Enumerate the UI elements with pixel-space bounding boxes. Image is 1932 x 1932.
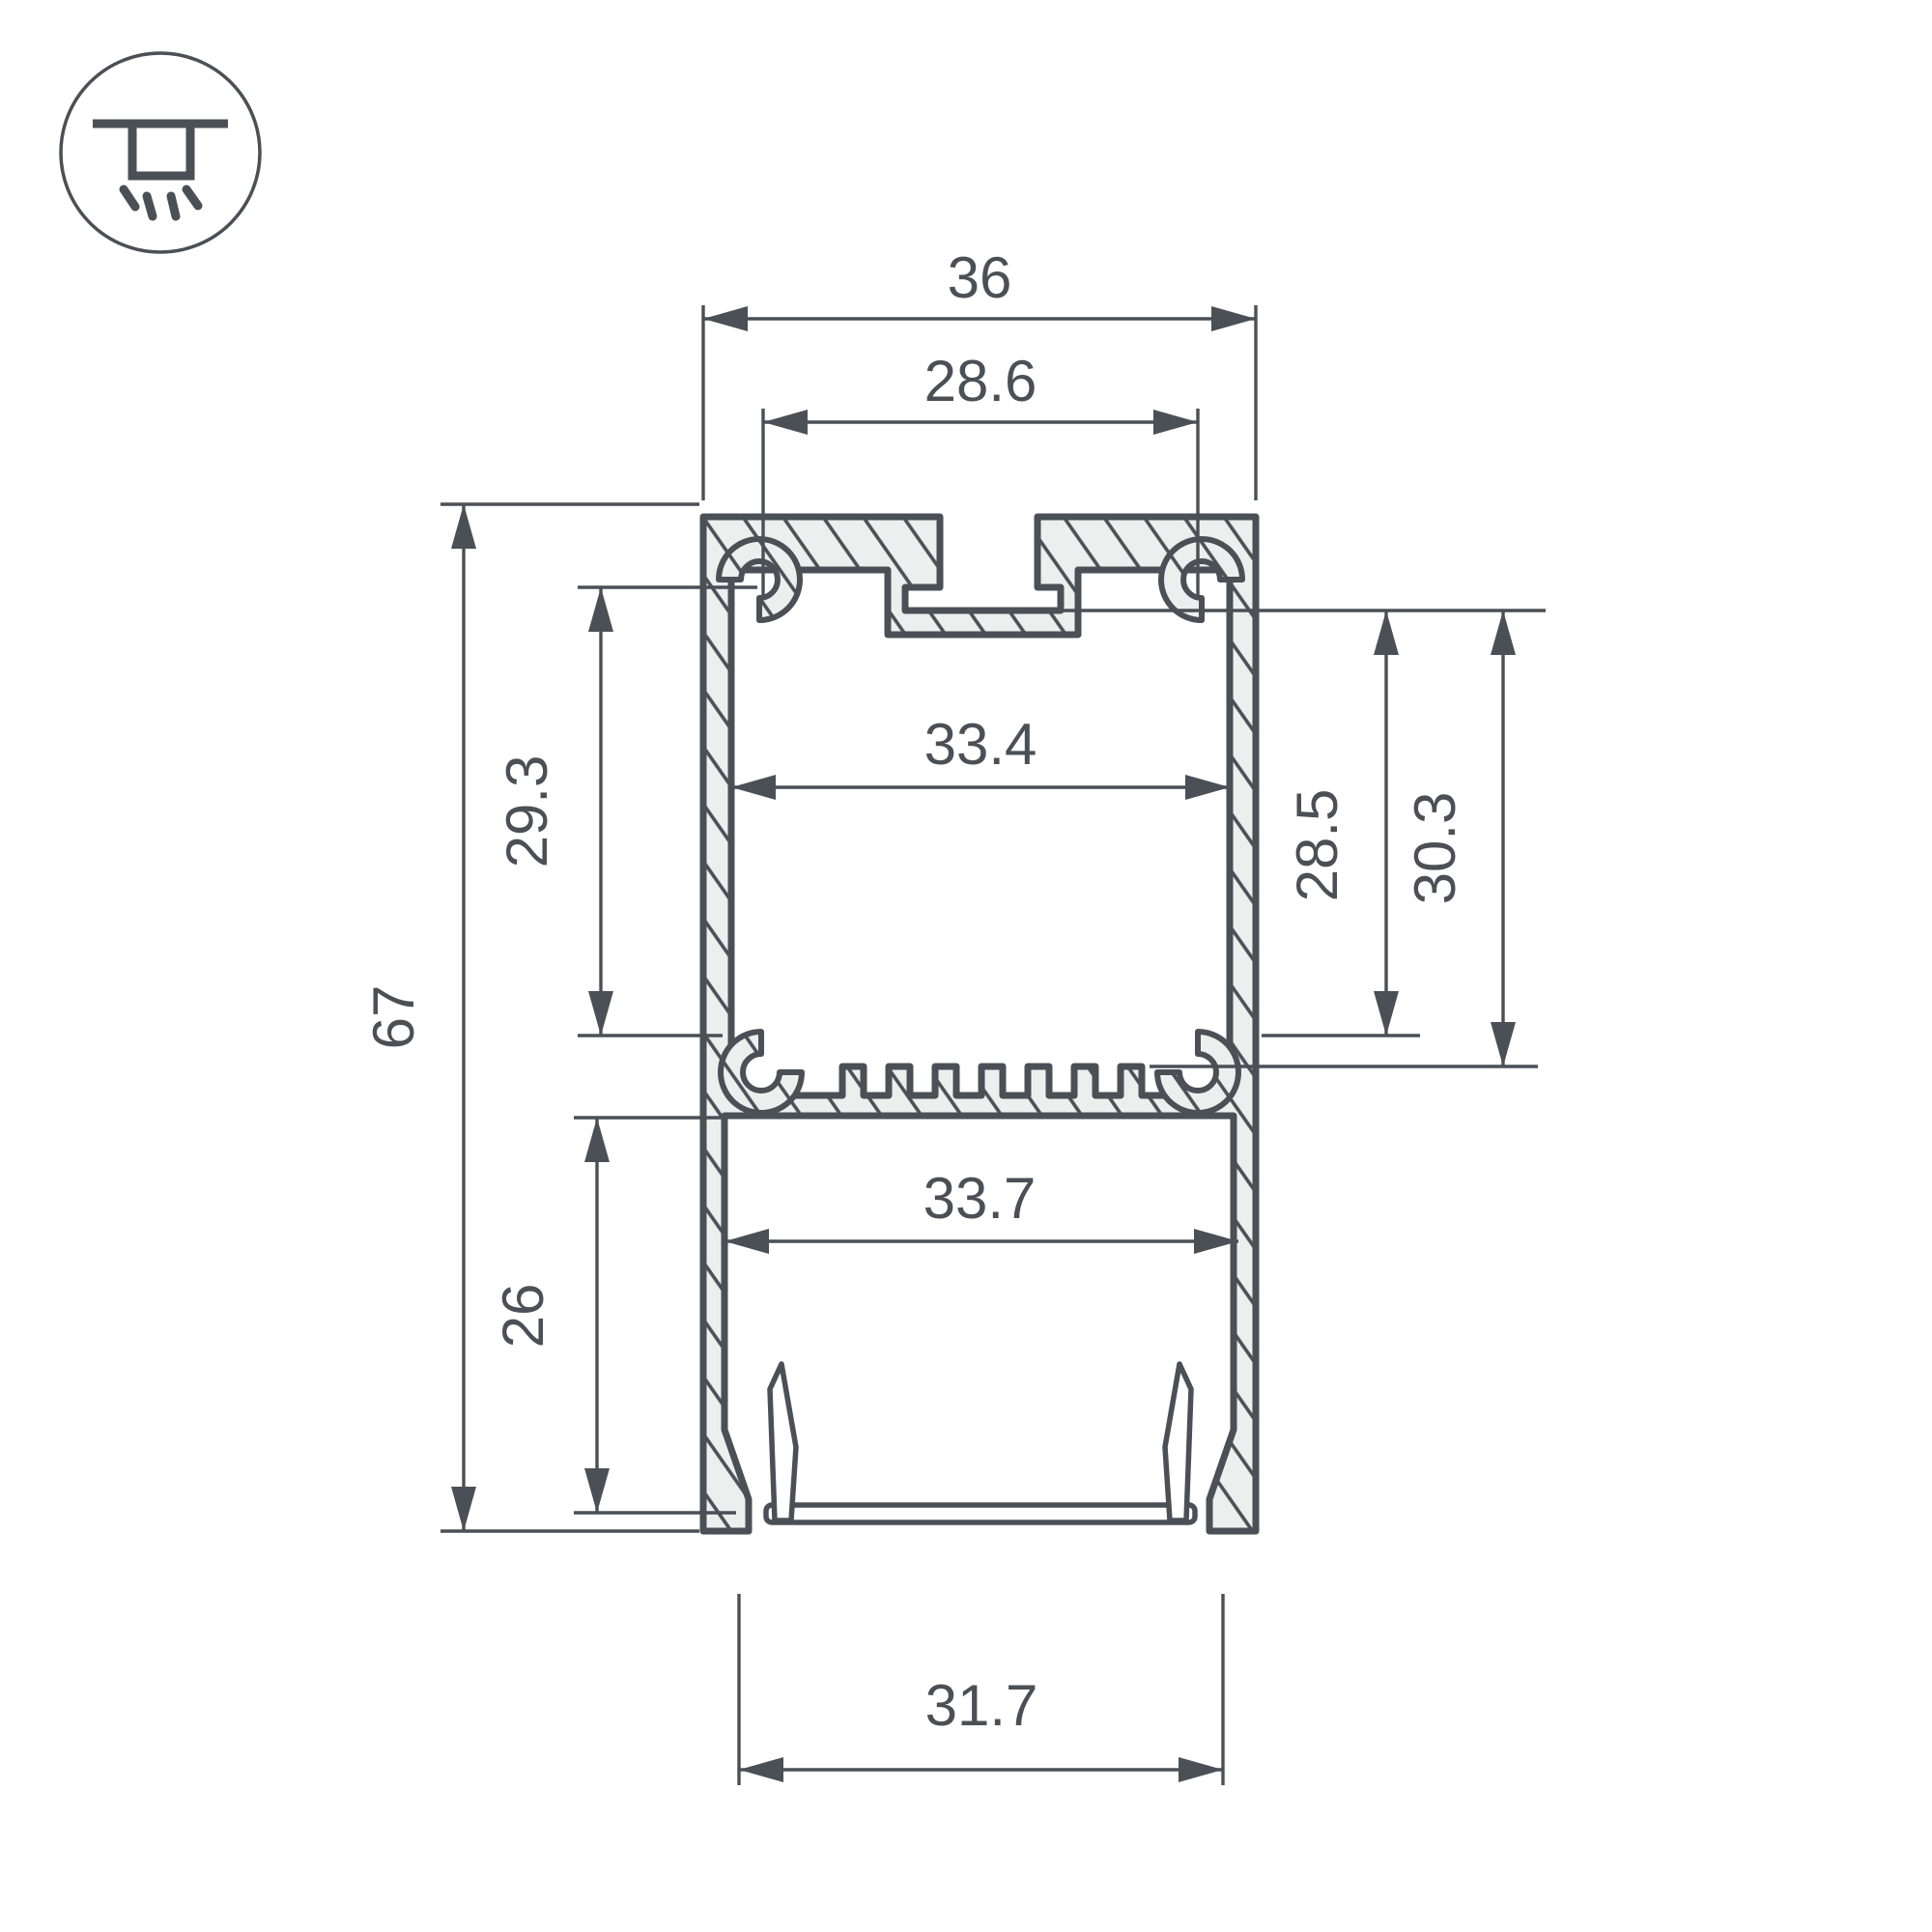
profile-cross-section-drawing: 36 28.6 33.4 29.3 67 28.5 30.3 33.7 26 3… xyxy=(0,0,1932,1932)
dim-width-inner-lower: 33.7 xyxy=(923,1166,1037,1231)
dim-width-screw-spacing: 28.6 xyxy=(924,349,1037,413)
ceiling-light-icon xyxy=(61,53,260,252)
dimension-lines xyxy=(440,305,1546,1785)
dim-width-top: 36 xyxy=(948,245,1012,310)
dim-width-inner-upper: 33.4 xyxy=(924,712,1037,777)
dim-height-total: 67 xyxy=(361,985,426,1050)
dimension-height-total xyxy=(440,504,699,1531)
dim-height-upper-chamber: 29.3 xyxy=(495,755,559,868)
dim-height-right-inner: 28.5 xyxy=(1285,789,1350,902)
drawing-page: 36 28.6 33.4 29.3 67 28.5 30.3 33.7 26 3… xyxy=(0,0,1932,1932)
dim-height-lower-chamber: 26 xyxy=(491,1284,555,1349)
dim-height-right-outer: 30.3 xyxy=(1403,792,1467,905)
dim-width-bottom-opening: 31.7 xyxy=(925,1673,1038,1738)
aluminium-profile-body xyxy=(703,517,1256,1531)
